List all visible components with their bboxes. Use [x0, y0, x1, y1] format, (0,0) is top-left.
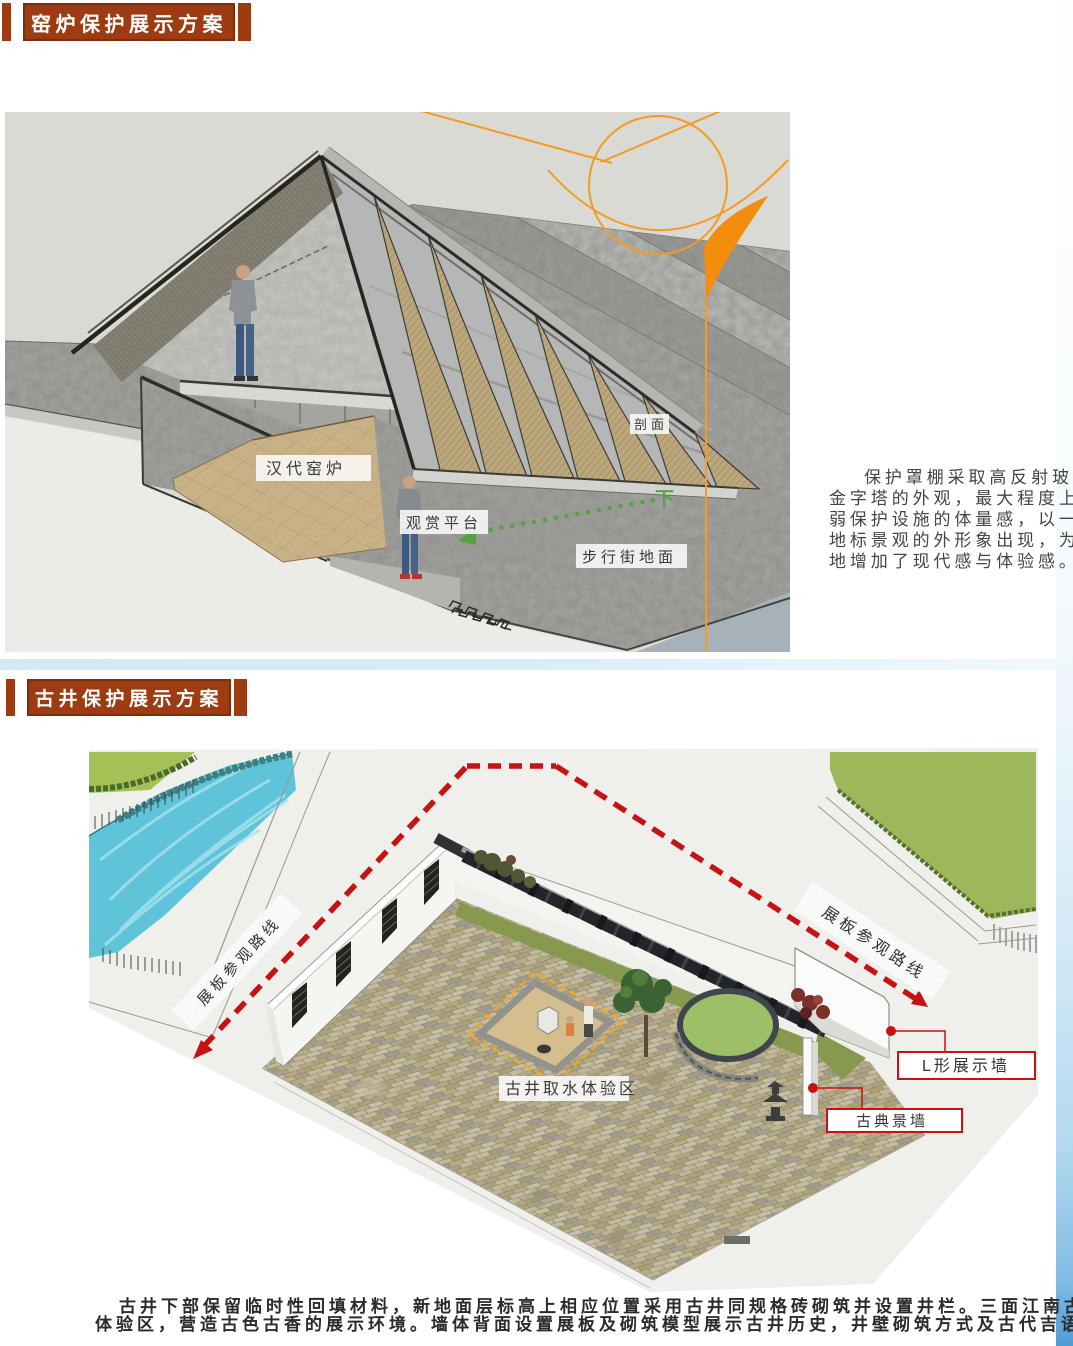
- svg-text:古井取水体验区: 古井取水体验区: [505, 1080, 638, 1098]
- svg-text:步行街地面: 步行街地面: [582, 549, 677, 566]
- svg-text:观赏平台: 观赏平台: [406, 515, 482, 532]
- svg-text:剖面: 剖面: [634, 417, 668, 432]
- svg-text:下: 下: [655, 489, 674, 510]
- svg-text:汉代窑炉: 汉代窑炉: [266, 460, 346, 478]
- svg-text:古典景墙: 古典景墙: [856, 1113, 928, 1130]
- svg-text:L形展示墙: L形展示墙: [922, 1057, 1010, 1075]
